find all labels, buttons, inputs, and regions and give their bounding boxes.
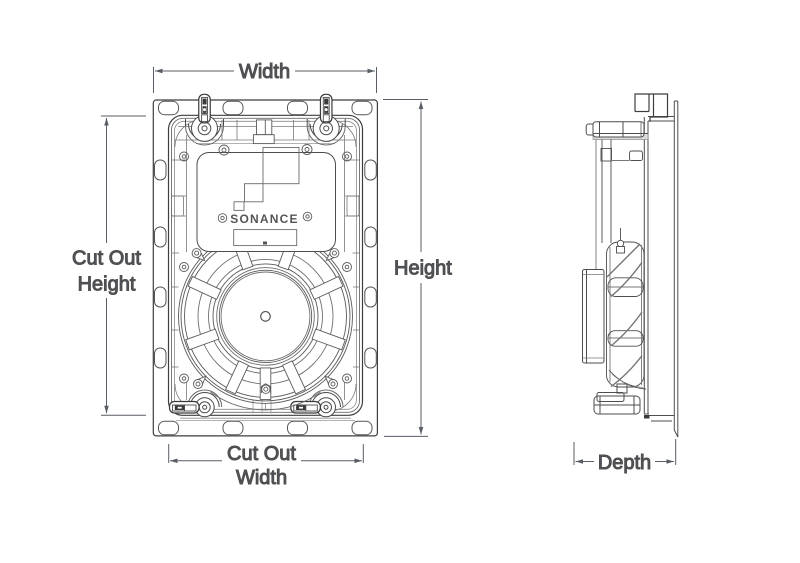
svg-text:Cut Out: Cut Out: [227, 443, 296, 465]
svg-text:SONANCE: SONANCE: [230, 212, 298, 226]
svg-text:Height: Height: [78, 274, 136, 296]
svg-text:Width: Width: [236, 467, 287, 489]
svg-text:Width: Width: [239, 61, 290, 83]
svg-text:Height: Height: [394, 258, 452, 280]
svg-text:Cut Out: Cut Out: [72, 248, 141, 270]
svg-text:Depth: Depth: [598, 452, 651, 474]
